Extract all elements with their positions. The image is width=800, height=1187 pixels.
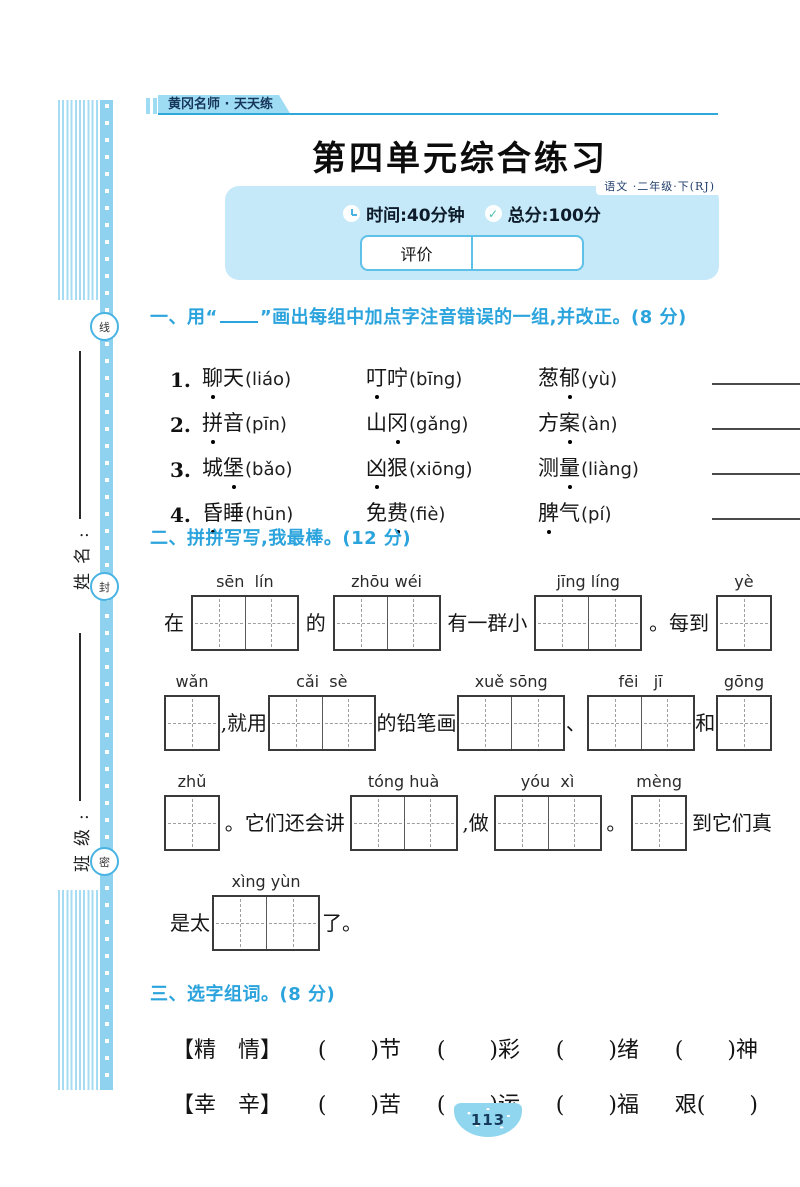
pinyin-label: yè — [734, 564, 753, 595]
pinyin-box-group: zhǔ — [164, 764, 220, 851]
term-char: 方 — [538, 407, 559, 437]
sentence-text: 是太 — [170, 907, 210, 951]
term: 聊天(liáo) — [202, 362, 366, 392]
score-label: 总分:100分 — [508, 201, 601, 226]
grid-cells — [534, 595, 642, 651]
pinyin-box-group: sēn lín — [191, 564, 299, 651]
term: 葱郁(yù) — [538, 362, 712, 392]
word-choice-item: 艰( ) — [675, 1087, 758, 1119]
term-pinyin: (bǎo) — [245, 459, 293, 480]
time-score-row: 时间:40分钟 ✓ 总分:100分 — [225, 201, 719, 226]
pinyin-box-group: tóng huà — [350, 764, 458, 851]
heading-text: 一、用“ — [150, 307, 218, 328]
term-word: 昏睡 — [202, 497, 244, 527]
check-icon: ✓ — [485, 205, 502, 222]
pinyin-writing-row: zhǔ。它们还会讲tóng huà,做yóu xì。mèng到它们真 — [150, 764, 772, 851]
term-char: 郁 — [559, 362, 580, 392]
character-grid-cell[interactable] — [404, 797, 456, 849]
grid-cells — [494, 795, 602, 851]
name-field: 姓名: — [68, 351, 92, 590]
grid-cells — [716, 695, 772, 751]
term-char: 咛 — [387, 362, 408, 392]
term: 昏睡(hūn) — [202, 497, 366, 527]
seal-char-text: 封 — [99, 579, 110, 595]
word-choice-row: 【精 情】( )节( )彩( )绪( )神 — [172, 1032, 758, 1064]
character-grid-cell[interactable] — [245, 597, 297, 649]
term-word: 方案 — [538, 407, 580, 437]
term-char: 叮 — [366, 362, 387, 392]
character-grid-cell[interactable] — [588, 597, 640, 649]
term: 山冈(gǎng) — [366, 407, 538, 437]
term-pinyin: (bīng) — [409, 369, 462, 390]
section-one-items: 1.聊天(liáo)叮咛(bīng)葱郁(yù)2.拼音(pīn)山冈(gǎng… — [150, 347, 772, 527]
term-char: 山 — [366, 407, 387, 437]
pinyin-label: xuě sōng — [475, 664, 548, 695]
phonetic-item-row: 2.拼音(pīn)山冈(gǎng)方案(àn) — [170, 392, 772, 437]
time-label: 时间:40分钟 — [366, 201, 464, 226]
character-grid-cell[interactable] — [270, 697, 322, 749]
pinyin-label: zhōu wéi — [351, 564, 422, 595]
edition-label: 语文 ·二年级·下(RJ) — [596, 177, 723, 195]
pinyin-label: cǎi sè — [296, 664, 347, 695]
brand-tab-label: 黄冈名师 · 天天练 — [168, 97, 273, 112]
sentence-text: 。它们还会讲 — [225, 807, 345, 851]
answer-blank[interactable] — [712, 428, 800, 430]
answer-blank[interactable] — [712, 518, 800, 520]
term-char: 费 — [387, 497, 408, 527]
term-char: 免 — [366, 497, 387, 527]
worksheet-title: 第四单元综合练习 — [150, 131, 770, 180]
grid-cells — [716, 595, 772, 651]
grid-cells — [333, 595, 441, 651]
sentence-text: 。 — [606, 807, 626, 851]
character-grid-cell[interactable] — [633, 797, 685, 849]
term-char: 堡 — [223, 452, 244, 482]
section-two-lines: 在sēn lín的zhōu wéi有一群小jīng líng。每到yèwǎn,就… — [150, 564, 772, 951]
page-number: 113 — [471, 1111, 505, 1129]
character-grid-cell[interactable] — [352, 797, 404, 849]
term-char: 聊 — [202, 362, 223, 392]
pinyin-label: mèng — [636, 764, 682, 795]
pinyin-box-group: cǎi sè — [268, 664, 376, 751]
sentence-text: ,做 — [462, 807, 488, 851]
term-pinyin: (pí) — [581, 504, 611, 525]
word-choice-item: ( )彩 — [437, 1032, 520, 1064]
evaluation-label-cell: 评价 — [360, 235, 472, 271]
character-grid-cell[interactable] — [322, 697, 374, 749]
term-word: 城堡 — [202, 452, 244, 482]
word-choice-item: 【精 情】 — [172, 1032, 282, 1064]
answer-blank[interactable] — [712, 383, 800, 385]
header-rule — [158, 113, 718, 115]
term-char: 案 — [559, 407, 580, 437]
grid-cells — [457, 695, 565, 751]
character-grid-cell[interactable] — [335, 597, 387, 649]
character-grid-cell[interactable] — [166, 797, 218, 849]
evaluation-row: 评价 — [225, 235, 719, 271]
term-char: 睡 — [223, 497, 244, 527]
term-char: 气 — [559, 497, 580, 527]
term-char: 音 — [223, 407, 244, 437]
word-choice-item: ( )苦 — [318, 1087, 401, 1119]
term-word: 免费 — [366, 497, 408, 527]
phonetic-item-row: 1.聊天(liáo)叮咛(bīng)葱郁(yù) — [170, 347, 772, 392]
seal-char-line: 线 — [90, 312, 119, 341]
word-choice-item: ( )神 — [675, 1032, 758, 1064]
sentence-text: 、 — [566, 707, 586, 751]
sentence-text: 的铅笔画 — [376, 707, 456, 751]
word-choice-item: ( )福 — [556, 1087, 639, 1119]
character-grid-cell[interactable] — [641, 697, 693, 749]
inline-blank — [220, 307, 258, 323]
evaluation-value-cell[interactable] — [472, 235, 584, 271]
item-number: 2. — [170, 413, 202, 437]
term-pinyin: (liáo) — [245, 369, 291, 390]
term: 脾气(pí) — [538, 497, 712, 527]
term-word: 山冈 — [366, 407, 408, 437]
section-two: 二、拼拼写写,我最棒。(12 分) 在sēn lín的zhōu wéi有一群小j… — [150, 524, 772, 964]
term-char: 测 — [538, 452, 559, 482]
term-pinyin: (liàng) — [581, 459, 639, 480]
grid-cells — [212, 895, 320, 951]
character-grid-cell[interactable] — [387, 597, 439, 649]
clock-icon — [343, 205, 360, 222]
pinyin-label: sēn lín — [216, 564, 274, 595]
pinyin-box-group: fēi jī — [587, 664, 695, 751]
name-field-label: 姓名: — [68, 523, 93, 590]
section-two-heading: 二、拼拼写写,我最棒。(12 分) — [150, 524, 772, 550]
pinyin-box-group: xuě sōng — [457, 664, 565, 751]
class-field: 班级: — [68, 633, 92, 872]
character-grid-cell[interactable] — [511, 697, 563, 749]
sentence-text: ,就用 — [221, 707, 267, 751]
character-grid-cell[interactable] — [166, 697, 218, 749]
term-char: 脾 — [538, 497, 559, 527]
info-card: 语文 ·二年级·下(RJ) 时间:40分钟 ✓ 总分:100分 评价 — [225, 186, 719, 280]
term-pinyin: (pīn) — [245, 414, 287, 435]
phonetic-item-row: 4.昏睡(hūn)免费(fiè)脾气(pí) — [170, 482, 772, 527]
pinyin-writing-row: wǎn,就用cǎi sè的铅笔画xuě sōng、fēi jī和gōng — [150, 664, 772, 751]
pinyin-label: fēi jī — [619, 664, 663, 695]
character-grid-cell[interactable] — [193, 597, 245, 649]
item-number: 1. — [170, 368, 202, 392]
heading-text: ”画出每组中加点字注音错误的一组,并改正。(8 分) — [260, 307, 687, 328]
character-grid-cell[interactable] — [496, 797, 548, 849]
sentence-text: 在 — [164, 607, 184, 651]
grid-cells — [164, 695, 220, 751]
term-pinyin: (àn) — [581, 414, 617, 435]
character-grid-cell[interactable] — [266, 897, 318, 949]
sentence-text: 。每到 — [649, 607, 709, 651]
character-grid-cell[interactable] — [589, 697, 641, 749]
term-char: 城 — [202, 452, 223, 482]
section-one-heading: 一、用“”画出每组中加点字注音错误的一组,并改正。(8 分) — [150, 303, 772, 329]
term-char: 凶 — [366, 452, 387, 482]
grid-cells — [268, 695, 376, 751]
margin-stripes-top — [58, 100, 102, 300]
term: 凶狠(xiōng) — [366, 452, 538, 482]
term-pinyin: (fiè) — [409, 504, 445, 525]
name-blank-line — [79, 351, 81, 519]
pinyin-box-group: yè — [716, 564, 772, 651]
term-char: 冈 — [387, 407, 408, 437]
term-char: 狠 — [387, 452, 408, 482]
term-word: 葱郁 — [538, 362, 580, 392]
grid-cells — [350, 795, 458, 851]
word-choice-item: ( )绪 — [556, 1032, 639, 1064]
pinyin-label: gōng — [724, 664, 764, 695]
pinyin-writing-row: 是太xìng yùn了。 — [150, 864, 772, 951]
sentence-text: 了。 — [322, 907, 362, 951]
character-grid-cell[interactable] — [718, 697, 770, 749]
section-three-heading: 三、选字组词。(8 分) — [150, 980, 772, 1006]
seal-char-mi: 密 — [90, 847, 119, 876]
character-grid-cell[interactable] — [459, 697, 511, 749]
brand-tab: 黄冈名师 · 天天练 — [158, 95, 291, 115]
pinyin-box-group: wǎn — [164, 664, 220, 751]
sentence-text: 和 — [695, 707, 715, 751]
pinyin-label: zhǔ — [178, 764, 207, 795]
pinyin-writing-row: 在sēn lín的zhōu wéi有一群小jīng líng。每到yè — [150, 564, 772, 651]
term-word: 叮咛 — [366, 362, 408, 392]
pinyin-box-group: gōng — [716, 664, 772, 751]
pinyin-box-group: yóu xì — [494, 764, 602, 851]
pinyin-box-group: jīng líng — [534, 564, 642, 651]
pinyin-label: jīng líng — [556, 564, 619, 595]
phonetic-item-row: 3.城堡(bǎo)凶狠(xiōng)测量(liàng) — [170, 437, 772, 482]
word-choice-item: ( )节 — [318, 1032, 401, 1064]
character-grid-cell[interactable] — [718, 597, 770, 649]
pinyin-box-group: xìng yùn — [212, 864, 320, 951]
pinyin-label: yóu xì — [521, 764, 574, 795]
term-word: 脾气 — [538, 497, 580, 527]
seal-char-text: 密 — [99, 854, 110, 870]
grid-cells — [631, 795, 687, 851]
term: 方案(àn) — [538, 407, 712, 437]
term-char: 昏 — [202, 497, 223, 527]
pinyin-label: xìng yùn — [231, 864, 300, 895]
term: 测量(liàng) — [538, 452, 712, 482]
grid-cells — [164, 795, 220, 851]
term-word: 聊天 — [202, 362, 244, 392]
margin-stripes-bottom — [58, 890, 102, 1090]
answer-blank[interactable] — [712, 473, 800, 475]
term-char: 天 — [223, 362, 244, 392]
term-pinyin: (xiōng) — [409, 459, 473, 480]
worksheet-page: { "margin": { "seal_chars": ["线", "封", "… — [0, 0, 800, 1187]
pinyin-box-group: zhōu wéi — [333, 564, 441, 651]
sentence-text: 到它们真 — [692, 807, 772, 851]
term-char: 拼 — [202, 407, 223, 437]
term-word: 凶狠 — [366, 452, 408, 482]
sentence-text: 的 — [306, 607, 326, 651]
character-grid-cell[interactable] — [548, 797, 600, 849]
class-field-label: 班级: — [68, 805, 93, 872]
grid-cells — [191, 595, 299, 651]
character-grid-cell[interactable] — [214, 897, 266, 949]
seal-char-feng: 封 — [90, 572, 119, 601]
pinyin-box-group: mèng — [631, 764, 687, 851]
pinyin-label: tóng huà — [368, 764, 440, 795]
term: 城堡(bǎo) — [202, 452, 366, 482]
term: 免费(fiè) — [366, 497, 538, 527]
term-pinyin: (yù) — [581, 369, 617, 390]
grid-cells — [587, 695, 695, 751]
term: 叮咛(bīng) — [366, 362, 538, 392]
character-grid-cell[interactable] — [536, 597, 588, 649]
term: 拼音(pīn) — [202, 407, 366, 437]
term-char: 葱 — [538, 362, 559, 392]
pinyin-label: wǎn — [175, 664, 208, 695]
sentence-text: 有一群小 — [447, 607, 527, 651]
section-one: 一、用“”画出每组中加点字注音错误的一组,并改正。(8 分) 1.聊天(liáo… — [150, 303, 772, 527]
term-word: 测量 — [538, 452, 580, 482]
term-char: 量 — [559, 452, 580, 482]
term-word: 拼音 — [202, 407, 244, 437]
brand-decoration-bars — [146, 98, 157, 114]
term-pinyin: (gǎng) — [409, 414, 468, 435]
item-number: 3. — [170, 458, 202, 482]
term-pinyin: (hūn) — [245, 504, 293, 525]
seal-char-text: 线 — [99, 319, 110, 335]
class-blank-line — [79, 633, 81, 801]
word-choice-item: 【幸 辛】 — [172, 1087, 282, 1119]
